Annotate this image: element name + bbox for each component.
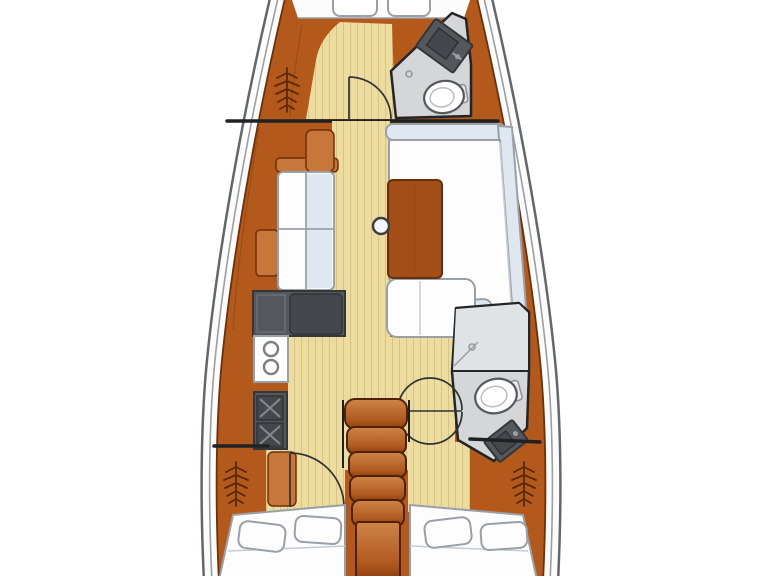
pillow [294,515,342,544]
pillow [424,516,473,548]
step [349,452,406,478]
saloon-floor-center [332,121,390,406]
pillow [237,520,286,552]
step-base [356,522,400,576]
deck-hatch [333,0,377,16]
stove-burner-icon [257,396,283,420]
deck-hatch [388,0,430,16]
yacht-floor-plan [0,0,768,576]
shower-floor [453,304,528,370]
settee-cushion-shade [307,174,332,288]
galley-floor [288,337,332,460]
aft-cabin-starboard-floor [408,442,470,512]
floor-plan-canvas [0,0,768,576]
sink-bowl-icon [264,360,278,374]
side-table [256,230,278,276]
pillow [480,521,528,550]
step [350,476,405,502]
sink-bowl-icon [264,342,278,356]
step [347,427,406,454]
stove-burner-icon [257,423,283,447]
aft-locker [268,452,296,506]
step [345,399,407,429]
mast-post-icon [373,218,389,234]
vberth-deck-band [290,0,472,18]
forward-cabinet [306,130,334,172]
sofa-back-top [386,124,506,140]
counter-module [290,294,342,334]
